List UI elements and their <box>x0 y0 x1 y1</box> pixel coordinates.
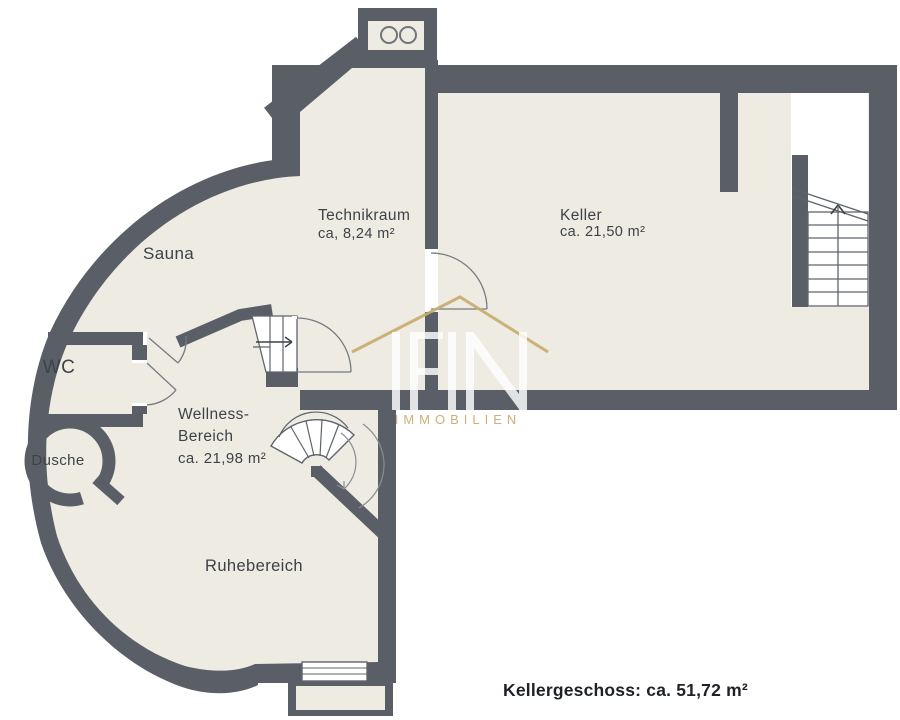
basement-window <box>302 662 367 681</box>
label-keller: Keller <box>560 207 602 224</box>
divider-wall-lower <box>425 308 438 390</box>
floor-title: Kellergeschoss: ca. 51,72 m² <box>503 680 748 700</box>
stair-side-wall <box>792 155 808 307</box>
label-wellness-line1: Wellness- <box>178 406 249 423</box>
floor-areas <box>46 21 869 710</box>
bottom-lightwell-floor <box>296 686 385 710</box>
label-technikraum: Technikraum <box>318 207 410 224</box>
keller-staircase <box>791 93 868 307</box>
watermark-subtitle: IMMOBILIEN <box>395 412 522 427</box>
keller-stub-wall <box>720 93 738 192</box>
sauna-wc-wall <box>48 332 147 345</box>
fan-stair-newel <box>311 466 322 477</box>
label-wc: WC <box>43 357 75 378</box>
label-ruhebereich: Ruhebereich <box>205 557 303 575</box>
label-wellness-area: ca. 21,98 m² <box>178 450 266 467</box>
right-wall <box>869 65 897 410</box>
bottom-wall <box>266 387 897 410</box>
floor-plan-drawing: IFIN <box>0 0 900 720</box>
label-dusche: Dusche <box>31 452 84 469</box>
divider-wall-upper <box>425 60 438 253</box>
label-keller-area: ca. 21,50 m² <box>560 224 645 240</box>
label-sauna: Sauna <box>143 244 194 263</box>
label-technikraum-area: ca, 8,24 m² <box>318 226 395 242</box>
floor-plan-page: IFIN <box>0 0 900 720</box>
label-wellness-line2: Bereich <box>178 428 233 445</box>
